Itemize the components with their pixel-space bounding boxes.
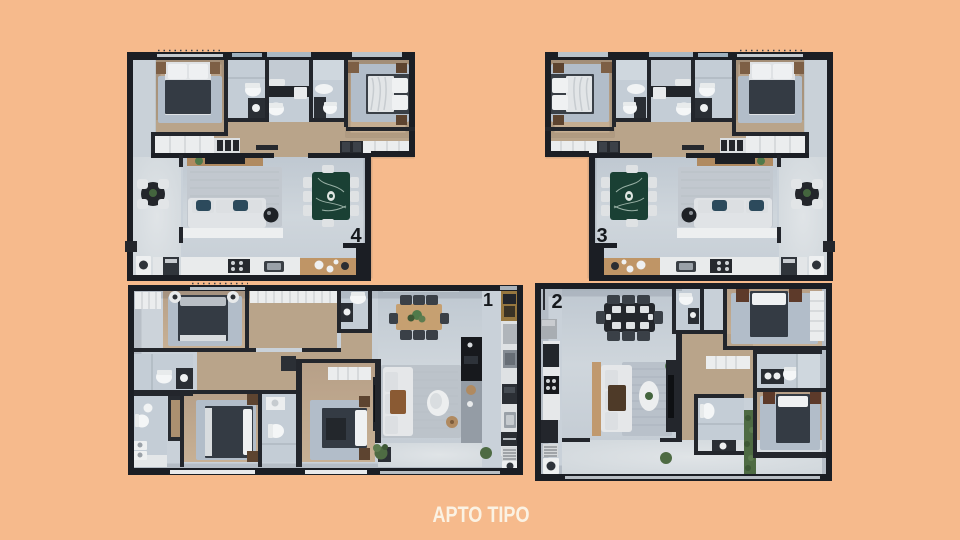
svg-text:1: 1 (483, 290, 493, 310)
svg-text:2: 2 (551, 291, 562, 313)
svg-text:4: 4 (350, 225, 362, 247)
svg-text:3: 3 (596, 225, 607, 247)
svg-text:APTO TIPO: APTO TIPO (433, 502, 530, 527)
